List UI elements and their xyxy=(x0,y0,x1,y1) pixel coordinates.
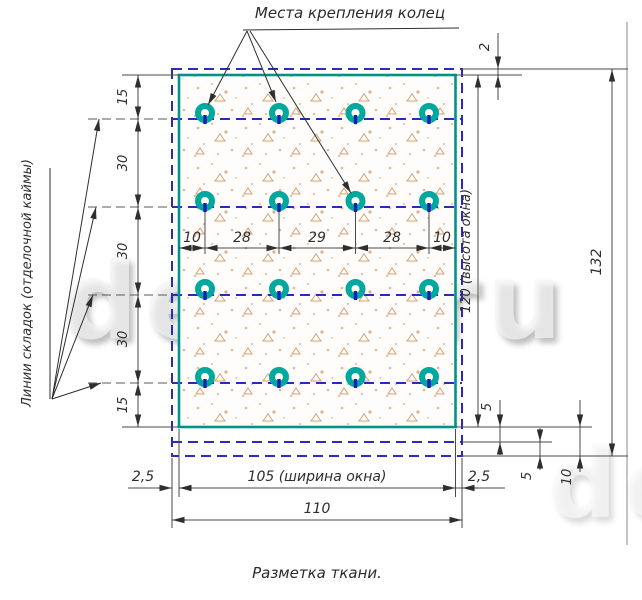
dim-bottom: 2,5 105 (ширина окна) 110 xyxy=(128,429,462,528)
fold-lines-label: Линии складок (отделочной каймы) xyxy=(20,159,35,408)
dim-hem-5-top: 5 xyxy=(480,403,495,411)
ring-marker xyxy=(198,282,212,300)
ring-marker xyxy=(422,370,436,388)
dim-h-28-2: 28 xyxy=(383,230,401,246)
dim-h-10-left: 10 xyxy=(183,230,201,246)
dim-window-width: 105 (ширина окна) xyxy=(248,469,387,485)
ring-marker xyxy=(349,194,363,212)
drawing-title: Места крепления колец xyxy=(255,4,445,22)
ring-marker xyxy=(349,370,363,388)
fabric-texture xyxy=(179,75,456,427)
dim-margin-left: 2,5 xyxy=(132,469,154,485)
ring-marker xyxy=(198,194,212,212)
dim-right: 2 120 (высота окна) 132 5 5 10 2,5 xyxy=(456,33,629,488)
dim-total-width: 110 xyxy=(304,501,331,517)
ring-marker xyxy=(422,194,436,212)
dim-margin-right: 2,5 xyxy=(468,469,490,485)
ring-marker xyxy=(272,106,286,124)
ring-marker xyxy=(272,370,286,388)
ring-marker xyxy=(349,282,363,300)
dim-total-height: 132 xyxy=(589,249,605,276)
dim-hem-5-bottom: 5 xyxy=(520,472,535,480)
dim-v-30-2: 30 xyxy=(116,243,131,260)
dim-left-chain: 15 30 30 30 15 xyxy=(88,75,179,427)
dim-window-height: 120 (высота окна) xyxy=(459,189,474,313)
drawing-caption: Разметка ткани. xyxy=(252,564,382,582)
technical-drawing-canvas: Места крепления колец Линии складок (отд… xyxy=(0,0,642,600)
dim-hem-total-10: 10 xyxy=(560,469,575,486)
dim-v-15-bottom: 15 xyxy=(116,397,131,414)
dim-h-10-right: 10 xyxy=(433,230,451,246)
ring-marker xyxy=(422,106,436,124)
ring-marker xyxy=(349,106,363,124)
dim-v-30-1: 30 xyxy=(116,155,131,172)
fabric-panel xyxy=(172,69,462,456)
ring-marker xyxy=(198,106,212,124)
leader-fold-row-4 xyxy=(52,383,101,399)
leader-fold-row-1 xyxy=(52,119,99,399)
ring-marker xyxy=(422,282,436,300)
dim-top-edge-2: 2 xyxy=(478,43,493,51)
fabric-marking-drawing: deek.ru deek.ru xyxy=(0,0,642,600)
dim-h-28-1: 28 xyxy=(233,230,251,246)
ring-marker xyxy=(198,370,212,388)
ring-marker xyxy=(272,282,286,300)
title-underline xyxy=(243,28,459,30)
fold-label-leaders xyxy=(50,119,101,399)
ring-marker xyxy=(272,194,286,212)
dim-h-29: 29 xyxy=(308,230,326,246)
dim-v-30-3: 30 xyxy=(116,331,131,348)
dim-v-15-top: 15 xyxy=(116,89,131,106)
